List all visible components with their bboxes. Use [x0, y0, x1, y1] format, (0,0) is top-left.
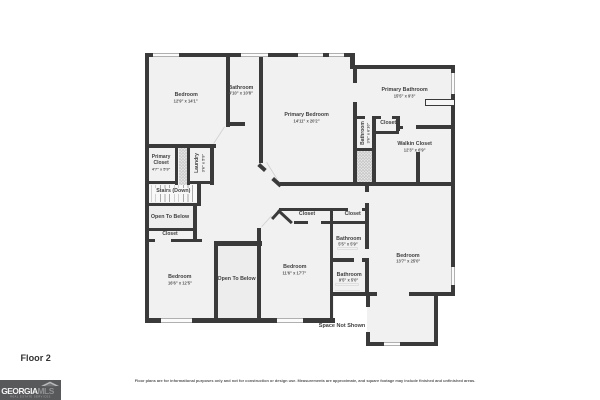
svg-text:MLS: MLS — [38, 386, 55, 396]
svg-text:GEORGIA: GEORGIA — [1, 386, 38, 396]
svg-text:REAL ESTATE SERVICES: REAL ESTATE SERVICES — [10, 396, 51, 399]
